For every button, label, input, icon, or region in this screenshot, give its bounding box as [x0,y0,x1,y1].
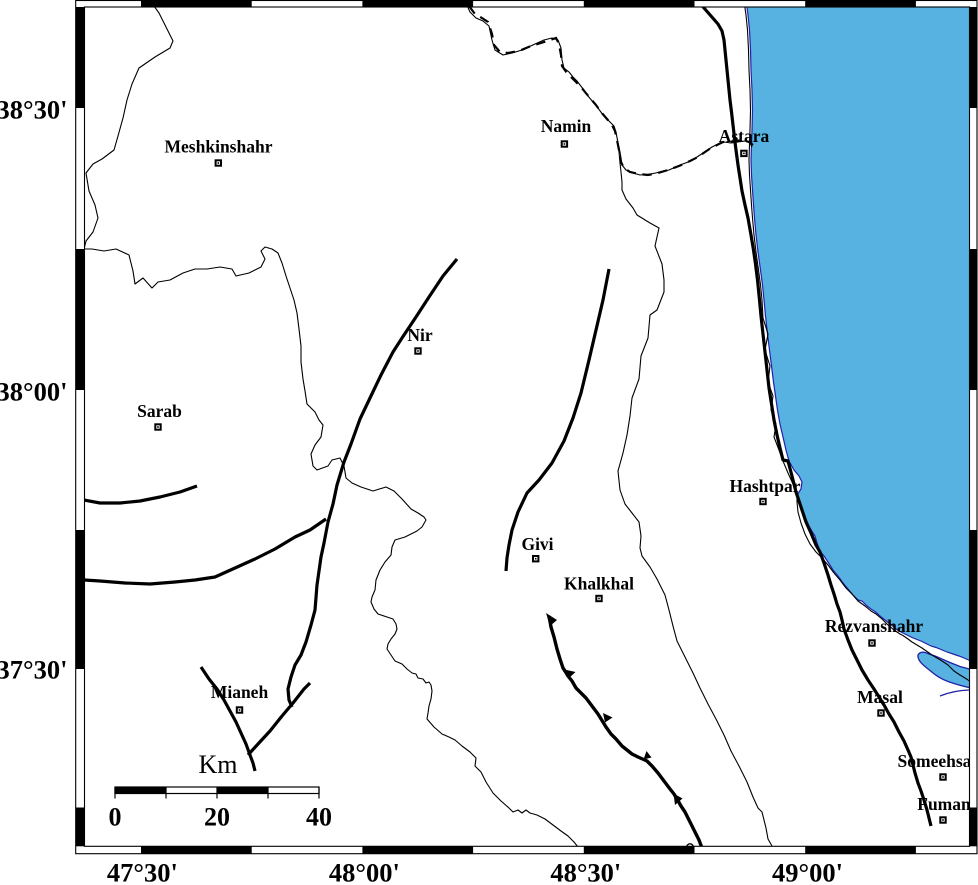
svg-text:48°00': 48°00' [329,858,400,885]
svg-text:20: 20 [204,803,230,832]
svg-text:Km: Km [199,750,238,779]
svg-text:Rezvanshahr: Rezvanshahr [825,616,923,636]
svg-text:Nir: Nir [407,325,433,345]
svg-text:Hashtpar: Hashtpar [730,476,801,496]
svg-text:38°00': 38°00' [0,377,68,407]
svg-text:Namin: Namin [541,116,592,136]
svg-text:Meshkinshahr: Meshkinshahr [165,137,273,157]
svg-text:Someehsa: Someehsa [898,751,972,771]
svg-text:49°00': 49°00' [772,858,843,885]
svg-text:40: 40 [306,803,332,832]
svg-text:Khalkhal: Khalkhal [564,574,634,594]
svg-text:Astara: Astara [719,126,770,146]
svg-text:48°30': 48°30' [550,858,621,885]
svg-text:Mianeh: Mianeh [211,682,269,702]
svg-text:47°30': 47°30' [107,858,178,885]
svg-text:38°30': 38°30' [0,95,68,125]
svg-text:Givi: Givi [521,534,553,554]
svg-text:Fuman: Fuman [917,794,971,814]
svg-text:0: 0 [109,803,122,832]
svg-text:Masal: Masal [857,687,903,707]
svg-text:37°30': 37°30' [0,655,68,685]
svg-text:Sarab: Sarab [137,401,182,421]
